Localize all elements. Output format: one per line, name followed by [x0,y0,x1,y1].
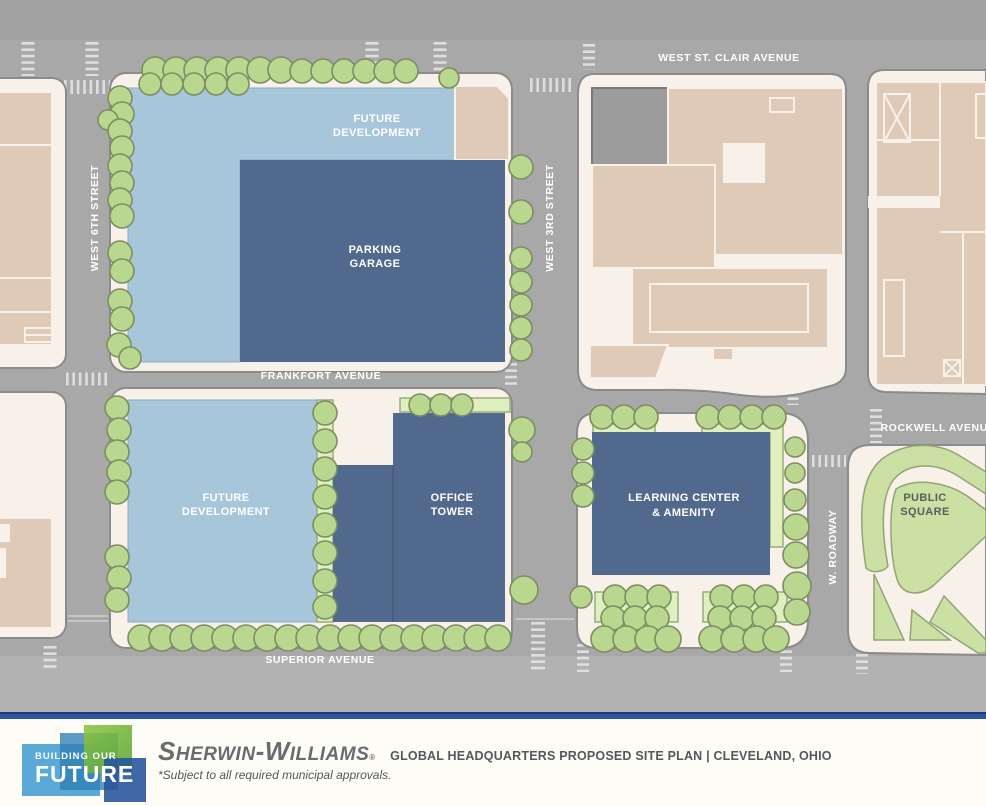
tree-icon [763,626,789,652]
logo-text: BUILDING OUR FUTURE [35,752,134,786]
tree-icon [785,463,805,483]
site-plan-poster: WEST ST. CLAIR AVENUE WEST 6TH STREET WE… [0,0,986,806]
label-learning-center-2: & AMENITY [652,507,716,519]
block-west-edge-south [0,392,66,638]
label-public-square-1: PUBLIC [903,492,946,504]
tree-icon [784,599,810,625]
tree-icon [105,396,129,420]
tree-icon [119,347,141,369]
tree-icon [161,73,183,95]
tree-icon [110,307,134,331]
label-west-st-clair: WEST ST. CLAIR AVENUE [658,52,800,64]
tree-icon [655,626,681,652]
tree-icon [783,542,809,568]
tree-icon [313,401,337,425]
tree-icon [510,247,532,269]
tree-icon [785,437,805,457]
tree-icon [570,586,592,608]
footer: BUILDING OUR FUTURE SHERWIN-WILLIAMS® GL… [0,712,986,806]
tree-icon [762,405,786,429]
label-office-tower-2: TOWER [431,506,474,518]
tree-icon [784,489,806,511]
block-office-tower [110,388,512,648]
tree-icon [227,73,249,95]
label-learning-center-1: LEARNING CENTER [628,492,740,504]
superior-roadway [0,656,986,712]
tree-icon [718,405,742,429]
tree-icon [510,576,538,604]
tree-icon [107,566,131,590]
site-plan-map: WEST ST. CLAIR AVENUE WEST 6TH STREET WE… [0,0,986,712]
label-parking-garage-1: PARKING [349,244,402,256]
tree-icon [313,569,337,593]
label-rockwell: ROCKWELL AVENUE [881,422,986,434]
label-future-dev-south-1: FUTURE [202,492,249,504]
label-public-square-2: SQUARE [900,506,949,518]
tree-icon [409,394,431,416]
tree-icon [696,405,720,429]
tree-icon [612,405,636,429]
label-future-dev-south-2: DEVELOPMENT [182,506,270,518]
label-w-roadway: W. ROADWAY [827,509,839,584]
label-future-dev-north-2: DEVELOPMENT [333,127,421,139]
building-our-future-logo: BUILDING OUR FUTURE [20,724,152,804]
label-parking-garage-2: GARAGE [350,258,401,270]
tree-icon [105,588,129,612]
label-west-6th: WEST 6TH STREET [89,165,101,271]
tree-icon [110,204,134,228]
tree-icon [313,457,337,481]
tree-icon [430,394,452,416]
label-future-dev-north-1: FUTURE [353,113,400,125]
tree-icon [313,595,337,619]
tree-icon [110,259,134,283]
tree-icon [313,485,337,509]
tree-icon [205,73,227,95]
tree-icon [572,438,594,460]
label-superior: SUPERIOR AVENUE [265,654,374,666]
st-clair-roadway [0,0,986,40]
tree-icon [183,73,205,95]
tree-icon [572,462,594,484]
tree-icon [313,513,337,537]
tree-icon [572,485,594,507]
sherwin-williams-wordmark: SHERWIN-WILLIAMS® [158,736,376,766]
footer-divider-bar [0,712,986,719]
tree-icon [485,625,511,651]
tree-icon [313,429,337,453]
block-northeast-existing [578,74,846,397]
block-public-square [848,445,986,655]
tree-icon [439,68,459,88]
tree-icon [510,317,532,339]
tree-icon [510,271,532,293]
label-office-tower-1: OFFICE [431,492,474,504]
tree-icon [510,294,532,316]
disclaimer: *Subject to all required municipal appro… [158,768,391,782]
tree-icon [139,73,161,95]
plan-title: GLOBAL HEADQUARTERS PROPOSED SITE PLAN |… [390,749,832,763]
block-west-edge-north [0,78,66,368]
tree-icon [590,405,614,429]
tree-icon [509,200,533,224]
label-frankfort: FRANKFORT AVENUE [261,370,381,382]
block-parking-garage [110,73,512,372]
tree-icon [105,480,129,504]
tree-icon [107,418,131,442]
brand-line: SHERWIN-WILLIAMS® GLOBAL HEADQUARTERS PR… [158,736,832,767]
tree-icon [510,339,532,361]
tree-icon [451,394,473,416]
tree-icon [740,405,764,429]
tree-icon [634,405,658,429]
block-east-edge-existing [868,70,986,394]
tree-icon [509,155,533,179]
label-west-3rd: WEST 3RD STREET [544,164,556,272]
tree-icon [313,541,337,565]
tree-icon [509,417,535,443]
tree-icon [394,59,418,83]
tree-icon [783,572,811,600]
tree-icon [512,442,532,462]
tree-icon [783,514,809,540]
corner-building [455,86,509,160]
logo-line2: FUTURE [35,763,134,786]
existing-gray-building [592,88,668,165]
